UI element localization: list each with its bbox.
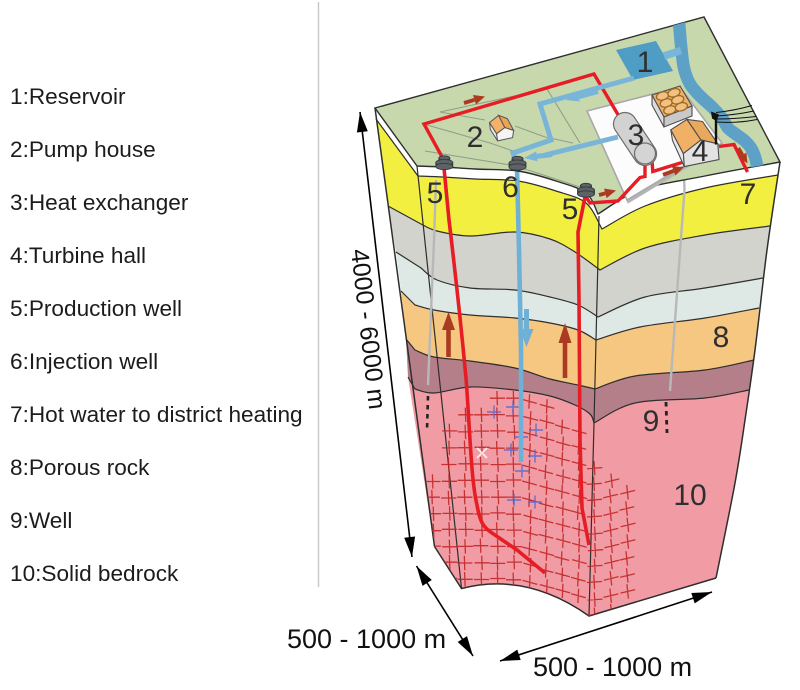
svg-text:2: 2: [467, 121, 484, 154]
svg-text:10: 10: [673, 479, 706, 512]
svg-text:3: 3: [628, 119, 645, 152]
svg-text:7:Hot water to district heatin: 7:Hot water to district heating: [10, 402, 303, 427]
svg-text:6:Injection well: 6:Injection well: [10, 349, 158, 374]
svg-text:5:Production well: 5:Production well: [10, 296, 182, 321]
svg-text:2:Pump house: 2:Pump house: [10, 137, 156, 162]
svg-text:9: 9: [643, 405, 660, 438]
svg-text:500 - 1000 m: 500 - 1000 m: [533, 652, 692, 682]
svg-text:1:Reservoir: 1:Reservoir: [10, 84, 126, 109]
svg-text:3:Heat exchanger: 3:Heat exchanger: [10, 190, 189, 215]
svg-text:6: 6: [502, 171, 519, 204]
svg-text:4: 4: [692, 135, 709, 168]
svg-text:8: 8: [713, 321, 730, 354]
svg-text:7: 7: [740, 178, 757, 211]
svg-text:5: 5: [427, 177, 444, 210]
svg-text:8:Porous rock: 8:Porous rock: [10, 455, 150, 480]
svg-text:4:Turbine hall: 4:Turbine hall: [10, 243, 146, 268]
svg-text:9:Well: 9:Well: [10, 508, 72, 533]
svg-text:5: 5: [562, 193, 579, 226]
svg-text:500 - 1000 m: 500 - 1000 m: [287, 624, 446, 654]
svg-text:10:Solid bedrock: 10:Solid bedrock: [10, 561, 179, 586]
svg-text:1: 1: [637, 46, 654, 79]
